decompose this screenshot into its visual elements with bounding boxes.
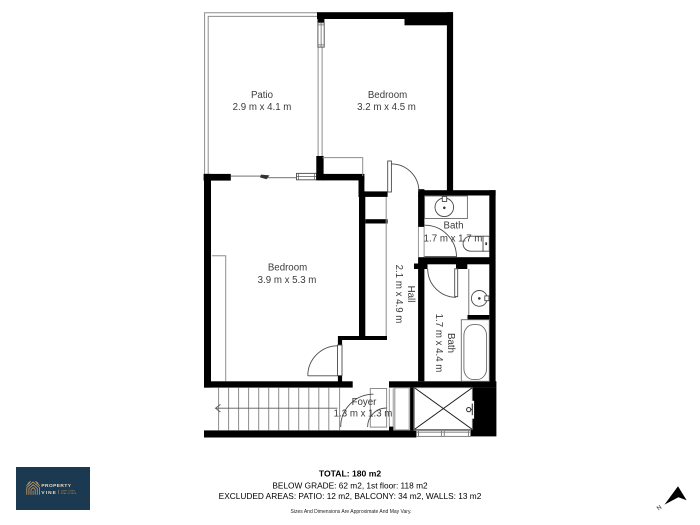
svg-text:TOTAL: 180 m2: TOTAL: 180 m2 [319,469,381,479]
svg-text:BELOW GRADE: 62 m2, 1st floor:: BELOW GRADE: 62 m2, 1st floor: 118 m2 [272,480,428,490]
svg-text:Bath: Bath [445,333,456,353]
svg-text:2.9 m x 4.1 m: 2.9 m x 4.1 m [233,102,292,113]
svg-text:PROPERTY: PROPERTY [41,483,71,489]
svg-text:2.1 m x 4.9 m: 2.1 m x 4.9 m [393,265,404,324]
svg-text:Bedroom: Bedroom [368,90,407,101]
svg-text:EXCLUDED AREAS: PATIO: 12 m2,: EXCLUDED AREAS: PATIO: 12 m2, BALCONY: 3… [219,491,482,501]
svg-text:3.2 m x 4.5 m: 3.2 m x 4.5 m [357,102,416,113]
svg-text:1.7 m x 4.4 m: 1.7 m x 4.4 m [433,314,444,373]
svg-text:Hall: Hall [405,286,416,303]
svg-text:REAL ESTATE: REAL ESTATE [61,492,77,495]
svg-text:Foyer: Foyer [352,397,378,408]
svg-text:Sizes And Dimensions Are Appro: Sizes And Dimensions Are Approximate And… [291,509,412,515]
svg-text:1.3 m x 1.3 m: 1.3 m x 1.3 m [334,408,393,419]
svg-text:3.9 m x 5.3 m: 3.9 m x 5.3 m [258,275,317,286]
svg-text:VINE: VINE [41,490,57,496]
svg-text:Bedroom: Bedroom [268,262,307,273]
svg-text:Patio: Patio [251,90,273,101]
svg-text:Bath: Bath [444,221,464,232]
svg-text:1.7 m x 1.7 m: 1.7 m x 1.7 m [424,233,483,244]
